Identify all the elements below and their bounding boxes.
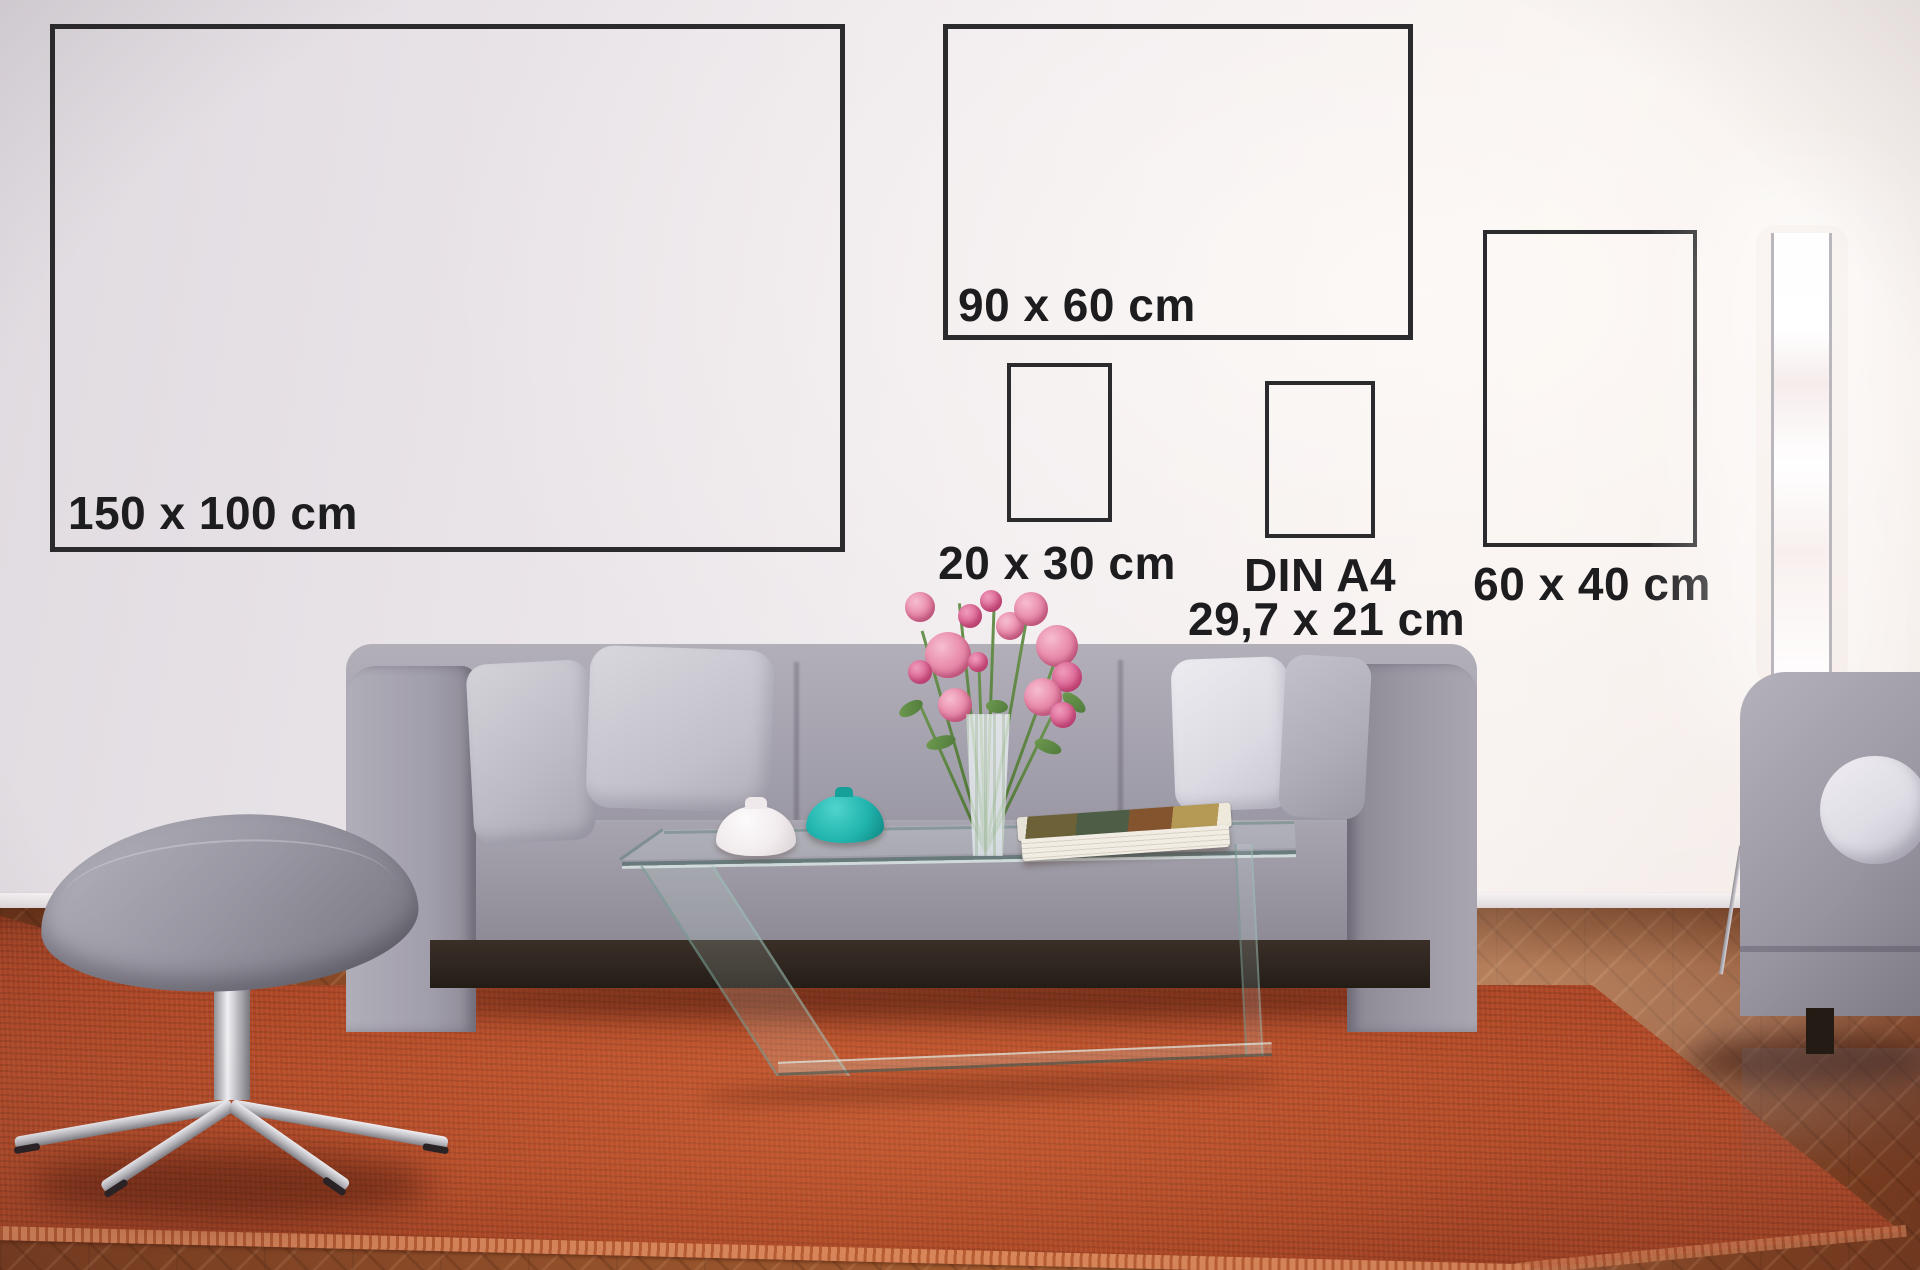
size-frame-150x100: [50, 24, 845, 552]
size-label-60x40: 60 x 40 cm: [1472, 560, 1712, 608]
size-frame-din-a4: [1265, 381, 1375, 538]
right-sofa-seam: [1740, 946, 1920, 952]
flower-bud: [968, 652, 988, 672]
sofa-back-seam: [794, 662, 799, 822]
sofa-pillow: [1170, 656, 1291, 812]
right-sofa-reflection: [1742, 1048, 1920, 1198]
sofa-wood-base: [430, 940, 1430, 988]
flower-bud: [908, 660, 932, 684]
size-label-150x100: 150 x 100 cm: [68, 489, 358, 537]
size-frame-20x30: [1007, 363, 1112, 522]
ottoman-pedestal: [214, 978, 250, 1100]
right-sofa-bolster-pillow: [1820, 756, 1920, 864]
glass-flower-vase: [966, 714, 1010, 856]
size-label-20x30: 20 x 30 cm: [937, 539, 1177, 587]
flower-bud: [980, 590, 1002, 612]
floor-lamp-column: [1771, 233, 1832, 675]
size-sublabel-din-a4: 29,7 x 21 cm: [1188, 595, 1448, 643]
size-label-90x60: 90 x 60 cm: [958, 281, 1196, 329]
flower-blossom: [1036, 625, 1078, 667]
sofa-back-seam: [1118, 660, 1123, 820]
living-room-scene: 150 x 100 cm 90 x 60 cm 20 x 30 cm DIN A…: [0, 0, 1920, 1270]
flower-blossom: [1050, 702, 1076, 728]
size-frame-60x40: [1483, 230, 1697, 547]
flower-bud: [958, 604, 982, 628]
ottoman-shadow: [30, 1150, 430, 1220]
sofa-pillow: [585, 645, 775, 813]
sofa-pillow: [465, 659, 596, 845]
flower-blossom: [1014, 592, 1048, 626]
sofa-pillow: [1278, 654, 1372, 820]
right-sofa-leg: [1806, 1008, 1834, 1054]
flower-blossom: [905, 592, 935, 622]
